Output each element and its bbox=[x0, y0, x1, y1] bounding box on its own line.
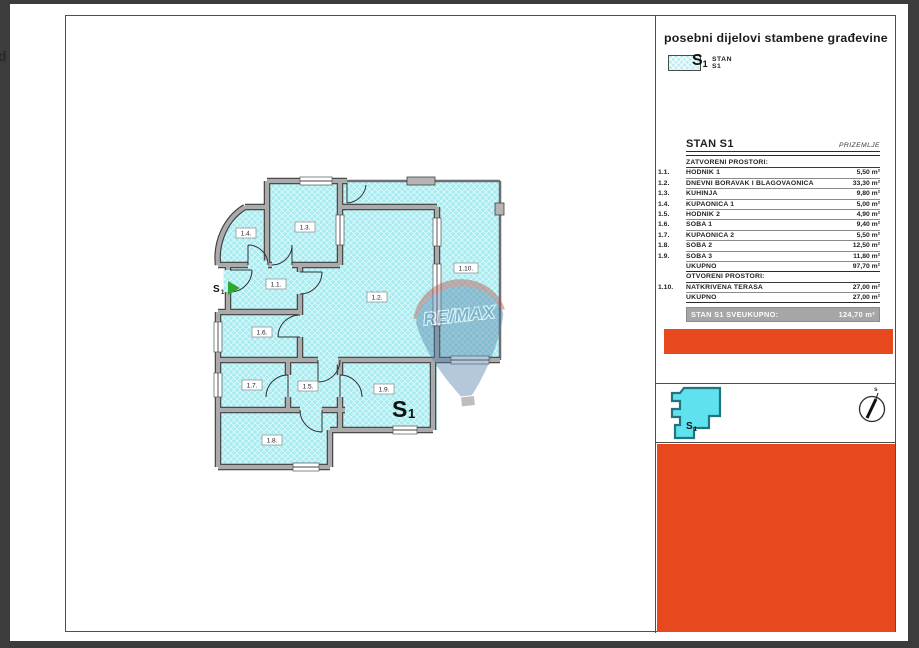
svg-text:S: S bbox=[213, 284, 220, 295]
svg-text:s: s bbox=[874, 386, 878, 393]
svg-text:1.10.: 1.10. bbox=[459, 266, 474, 273]
terrace-pier bbox=[495, 203, 504, 215]
legend-symbol-sub: 1 bbox=[703, 59, 708, 69]
svg-text:1.7.: 1.7. bbox=[247, 383, 258, 390]
room-label-1-6: 1.6. bbox=[252, 327, 272, 337]
svg-text:S: S bbox=[686, 421, 693, 432]
table-row: 1.3.KUHINJA9,80 m² bbox=[658, 189, 880, 199]
svg-text:1.6.: 1.6. bbox=[257, 330, 268, 337]
table-row: 1.4.KUPAONICA 15,00 m² bbox=[658, 200, 880, 210]
table-row: 1.1.HODNIK 15,50 m² bbox=[658, 168, 880, 178]
room-label-1-9: 1.9. bbox=[374, 384, 394, 394]
north-compass-icon: s bbox=[854, 382, 890, 426]
table-title: STAN S1 bbox=[686, 138, 734, 150]
room-label-1-5: 1.5. bbox=[298, 381, 318, 391]
table-row: 1.7.KUPAONICA 25,50 m² bbox=[658, 231, 880, 241]
sheet-title: posebni dijelovi stambene građevine bbox=[664, 31, 896, 45]
svg-text:1: 1 bbox=[408, 406, 415, 421]
grand-total-area: 124,70 m² bbox=[839, 308, 875, 321]
room-label-1-3: 1.3. bbox=[295, 222, 315, 232]
table-row: 1.2.DNEVNI BORAVAK I BLAGOVAONICA33,30 m… bbox=[658, 179, 880, 189]
legend-unit-name: STAN S1 bbox=[712, 56, 732, 70]
room-label-1-10: 1.10. bbox=[454, 263, 478, 273]
double-rule bbox=[686, 151, 880, 156]
table-row: 1.10.NATKRIVENA TERASA27,00 m² bbox=[658, 283, 880, 293]
svg-text:1.8.: 1.8. bbox=[267, 438, 278, 445]
keyplan-divider-bottom bbox=[656, 442, 895, 443]
svg-text:1.4.: 1.4. bbox=[241, 231, 252, 238]
svg-text:1.3.: 1.3. bbox=[300, 225, 311, 232]
key-plan-icon: S 1 bbox=[666, 384, 726, 442]
panel-divider bbox=[655, 15, 656, 633]
room-label-1-2: 1.2. bbox=[367, 292, 387, 302]
room-label-1-8: 1.8. bbox=[262, 435, 282, 445]
room-label-1-1: 1.1. bbox=[266, 279, 286, 289]
total-row: UKUPNO97,70 m² bbox=[658, 262, 880, 272]
legend-symbol: S bbox=[692, 52, 703, 69]
room-label-1-7: 1.7. bbox=[242, 380, 262, 390]
table-row: 1.9.SOBA 311,80 m² bbox=[658, 252, 880, 262]
grand-total-bar: STAN S1 SVEUKUPNO: 124,70 m² bbox=[686, 307, 880, 322]
svg-text:S: S bbox=[392, 396, 407, 422]
orange-highlight-bar bbox=[664, 329, 893, 354]
table-row: 1.5.HODNIK 24,90 m² bbox=[658, 210, 880, 220]
room-label-1-4: 1.4. bbox=[236, 228, 256, 238]
table-floor: PRIZEMLJE bbox=[839, 142, 880, 149]
screenshot-root: { "viewer": { "edge_fragment": "d" }, "s… bbox=[0, 0, 919, 648]
svg-text:1.5.: 1.5. bbox=[303, 384, 314, 391]
svg-text:1: 1 bbox=[694, 426, 698, 433]
legend-unit-symbol: S1 bbox=[692, 52, 708, 70]
table-row: 1.8.SOBA 212,50 m² bbox=[658, 241, 880, 251]
orange-cover-block bbox=[657, 444, 895, 632]
area-table: STAN S1 PRIZEMLJE ZATVORENI PROSTORI: 1.… bbox=[658, 138, 880, 322]
svg-text:1.9.: 1.9. bbox=[379, 387, 390, 394]
svg-text:1.1.: 1.1. bbox=[271, 282, 282, 289]
table-header: STAN S1 PRIZEMLJE bbox=[658, 138, 880, 151]
section-row: OTVORENI PROSTORI: bbox=[658, 272, 880, 282]
terrace-pier bbox=[407, 177, 435, 185]
section-row: ZATVORENI PROSTORI: bbox=[658, 158, 880, 168]
grand-total-label: STAN S1 SVEUKUPNO: bbox=[691, 308, 778, 321]
svg-text:1.2.: 1.2. bbox=[372, 295, 383, 302]
total-row: UKUPNO27,00 m² bbox=[658, 293, 880, 303]
table-row: 1.6.SOBA 19,40 m² bbox=[658, 220, 880, 230]
